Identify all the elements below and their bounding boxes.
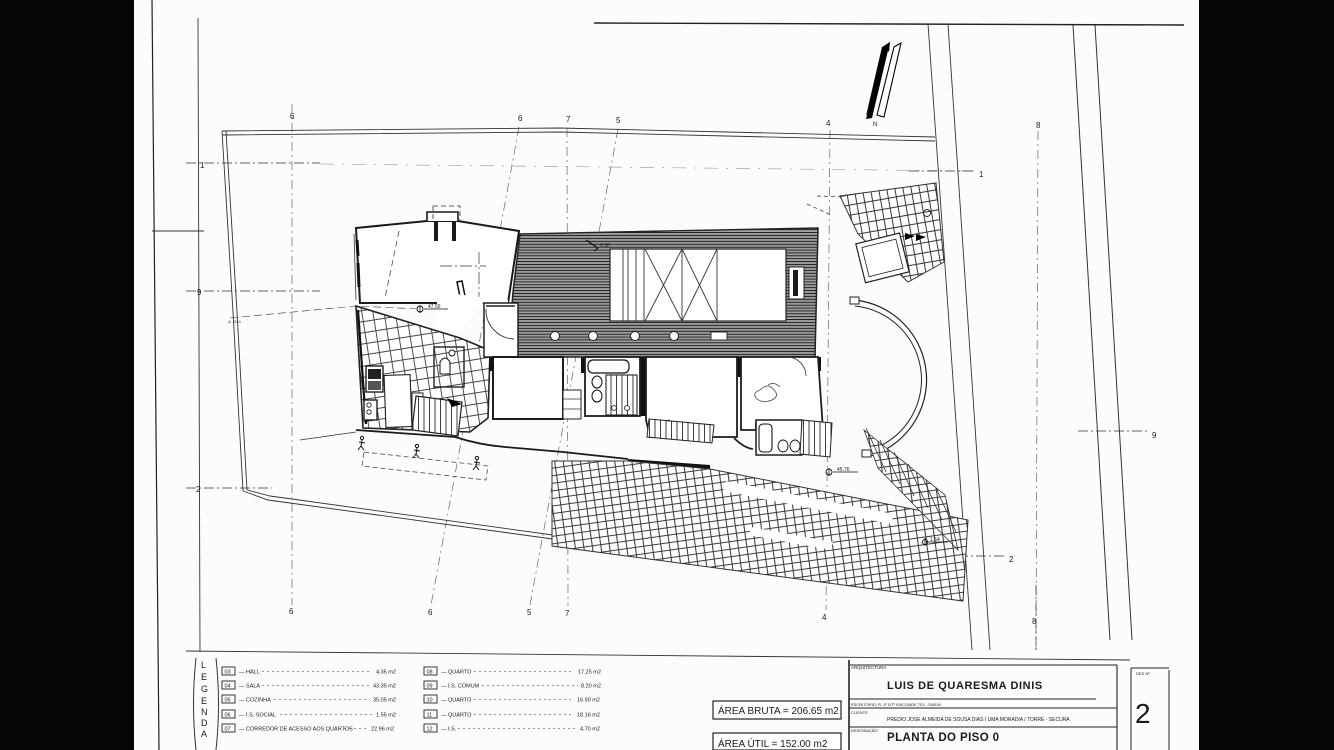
svg-text:A: A <box>201 729 207 739</box>
svg-text:5: 5 <box>616 116 621 125</box>
svg-text:6: 6 <box>428 608 433 617</box>
svg-text:9: 9 <box>1152 431 1157 440</box>
svg-text:— I.S. SOCIAL: — I.S. SOCIAL <box>239 713 276 719</box>
svg-text:06: 06 <box>225 713 231 719</box>
svg-text:— SALA: — SALA <box>239 684 260 690</box>
svg-text:4: 4 <box>826 119 831 128</box>
svg-text:09: 09 <box>427 684 433 690</box>
svg-text:6: 6 <box>290 112 295 121</box>
svg-text:1.55 m2: 1.55 m2 <box>376 713 396 719</box>
svg-text:A - 314: A - 314 <box>228 319 241 324</box>
svg-text:8: 8 <box>1036 121 1041 130</box>
svg-text:— CORREDOR DE ACESSO AOS QUART: — CORREDOR DE ACESSO AOS QUARTOS <box>239 727 353 733</box>
svg-text:7: 7 <box>566 115 571 124</box>
svg-text:03: 03 <box>225 670 231 676</box>
svg-text:07: 07 <box>225 727 231 733</box>
svg-text:4.35 m2: 4.35 m2 <box>376 670 396 676</box>
svg-text:— COZINHA: — COZINHA <box>239 698 271 704</box>
svg-text:— HALL: — HALL <box>239 670 260 676</box>
svg-text:9: 9 <box>197 288 202 297</box>
svg-text:DESIGNAÇÃO: DESIGNAÇÃO <box>851 728 878 733</box>
svg-text:35.05 m2: 35.05 m2 <box>373 698 396 704</box>
svg-text:47.56: 47.56 <box>428 304 441 310</box>
svg-text:L: L <box>201 660 206 670</box>
svg-text:6: 6 <box>289 607 294 616</box>
svg-text:6: 6 <box>518 114 523 123</box>
svg-text:43.35 m2: 43.35 m2 <box>373 684 396 690</box>
svg-text:— QUARTO: — QUARTO <box>441 670 472 676</box>
svg-text:1.54: 1.54 <box>930 537 940 543</box>
svg-text:LUIS DE QUARESMA DINIS: LUIS DE QUARESMA DINIS <box>887 680 1043 692</box>
svg-text:PLANTA DO PISO 0: PLANTA DO PISO 0 <box>887 732 999 744</box>
svg-text:— I.S.: — I.S. <box>441 727 457 733</box>
svg-text:10: 10 <box>427 698 433 704</box>
svg-text:45.76: 45.76 <box>837 467 850 473</box>
svg-text:4.30: 4.30 <box>600 243 610 249</box>
svg-text:E: E <box>201 696 207 706</box>
svg-text:8.20 m2: 8.20 m2 <box>581 684 601 690</box>
svg-text:PREDIO JOSE ALMEIDA DE SOUSA D: PREDIO JOSE ALMEIDA DE SOUSA DIAS I UMA … <box>887 717 1070 723</box>
svg-text:— QUARTO: — QUARTO <box>441 698 472 704</box>
svg-text:ÁREA ÚTIL = 152.00 m2: ÁREA ÚTIL = 152.00 m2 <box>718 737 828 750</box>
svg-text:— QUARTO: — QUARTO <box>441 713 472 719</box>
svg-text:DES Nº: DES Nº <box>1136 671 1150 676</box>
svg-text:N: N <box>201 707 208 717</box>
svg-text:ESCRITORIO: R. 1º DTº VISCONDE: ESCRITORIO: R. 1º DTº VISCONDE TEL. 2340… <box>851 702 941 707</box>
svg-text:1: 1 <box>200 161 205 170</box>
svg-text:2: 2 <box>1009 555 1014 564</box>
svg-text:4: 4 <box>822 613 827 622</box>
svg-text:16.90 m2: 16.90 m2 <box>577 698 600 704</box>
svg-text:12: 12 <box>427 727 433 733</box>
svg-text:N: N <box>873 122 877 128</box>
svg-text:04: 04 <box>225 684 231 690</box>
svg-text:18.16 m2: 18.16 m2 <box>577 713 600 719</box>
svg-text:CLIENTE: CLIENTE <box>851 710 868 715</box>
svg-text:E: E <box>201 672 207 682</box>
svg-text:ARQUITECTURA: ARQUITECTURA <box>851 665 887 670</box>
svg-text:08: 08 <box>427 670 433 676</box>
svg-text:22.96 m2: 22.96 m2 <box>371 727 394 733</box>
svg-text:5: 5 <box>527 608 532 617</box>
svg-text:4.70 m2: 4.70 m2 <box>580 727 600 733</box>
svg-text:2: 2 <box>1135 698 1151 729</box>
svg-text:1: 1 <box>979 170 984 179</box>
svg-text:05: 05 <box>225 698 231 704</box>
svg-text:D: D <box>201 718 208 728</box>
svg-text:ÁREA BRUTA = 206.65 m2: ÁREA BRUTA = 206.65 m2 <box>718 704 839 717</box>
svg-text:G: G <box>201 684 208 694</box>
svg-text:11: 11 <box>427 713 433 719</box>
svg-text:2: 2 <box>196 485 201 494</box>
svg-text:7: 7 <box>565 609 570 618</box>
svg-text:— I.S. COMUM: — I.S. COMUM <box>441 684 480 690</box>
svg-text:17.25 m2: 17.25 m2 <box>578 670 601 676</box>
